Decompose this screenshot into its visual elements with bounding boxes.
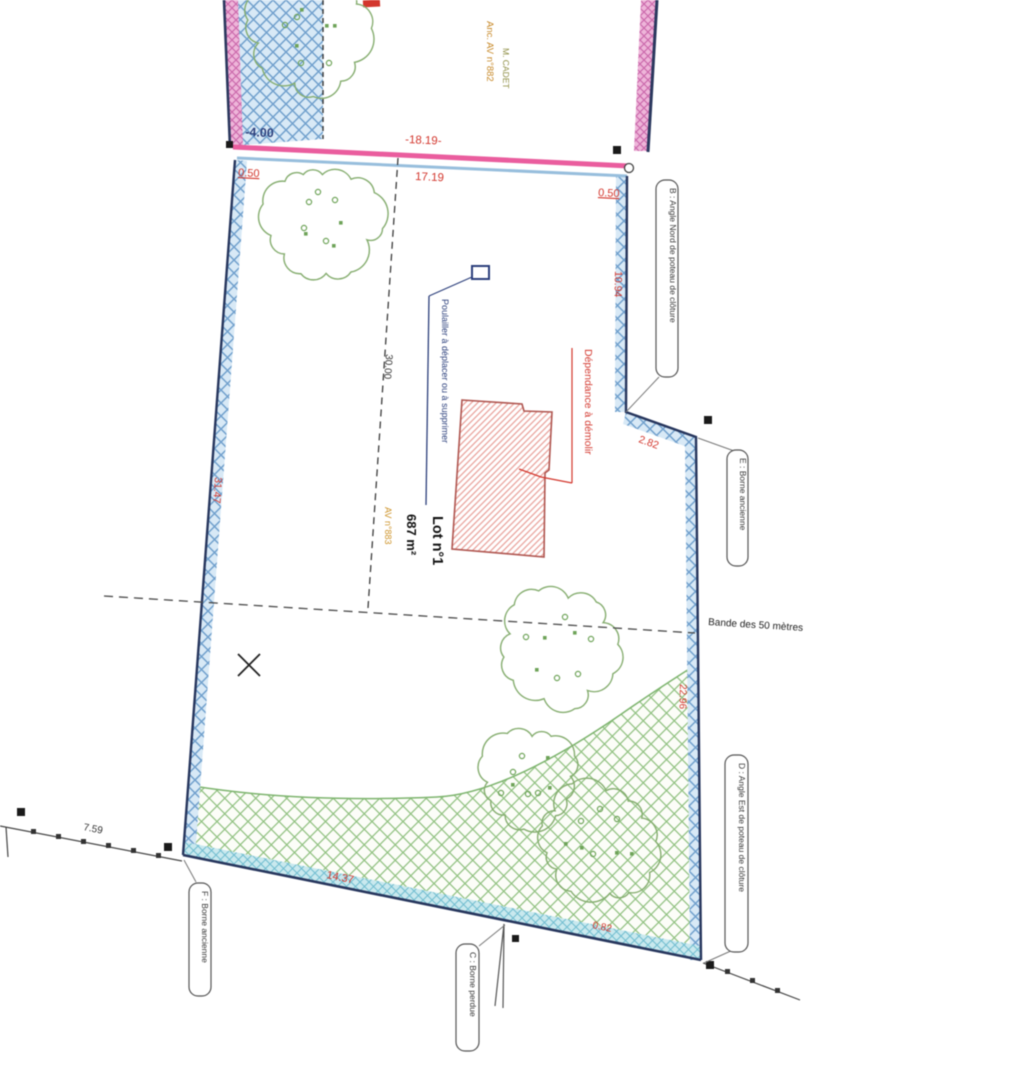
svg-text:10.94: 10.94	[612, 271, 624, 298]
svg-text:31.47: 31.47	[210, 477, 224, 504]
svg-text:0.50: 0.50	[598, 187, 620, 200]
svg-text:F : Borne ancienne: F : Borne ancienne	[200, 891, 210, 963]
svg-text:M. CADET: M. CADET	[501, 48, 511, 89]
svg-text:E : Borne ancienne: E : Borne ancienne	[738, 458, 748, 531]
svg-text:AV n°883: AV n°883	[383, 507, 393, 544]
svg-text:Lot n°1: Lot n°1	[429, 516, 445, 565]
svg-text:Dépendance à démolir: Dépendance à démolir	[582, 349, 594, 455]
svg-text:Anc. AV n°882: Anc. AV n°882	[484, 21, 495, 82]
svg-text:D : Angle Est de poteau de clô: D : Angle Est de poteau de clôture	[737, 763, 747, 892]
svg-text:C : Borne perdue: C : Borne perdue	[468, 952, 478, 1017]
svg-text:-18.19-: -18.19-	[405, 134, 442, 148]
svg-text:22.96: 22.96	[677, 684, 688, 710]
svg-text:17.19: 17.19	[415, 171, 444, 184]
svg-text:Poulailler à déplacer ou à sup: Poulailler à déplacer ou à supprimer	[440, 299, 450, 443]
svg-text:-4.00: -4.00	[245, 125, 274, 140]
svg-text:0.50: 0.50	[238, 167, 260, 180]
svg-text:687 m²: 687 m²	[404, 514, 419, 556]
svg-text:B : Angle Nord de poteau de cl: B : Angle Nord de poteau de clôture	[668, 188, 678, 323]
svg-text:30.00: 30.00	[381, 354, 394, 380]
